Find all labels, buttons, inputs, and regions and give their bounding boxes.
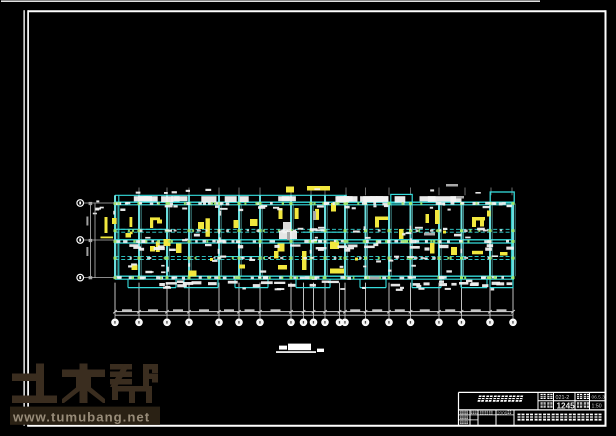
svg-text:www.tumubang.net: www.tumubang.net [12,410,150,425]
svg-text:1:50: 1:50 [592,404,602,410]
svg-text:1245: 1245 [557,401,576,410]
svg-text:2006: 2006 [497,411,508,416]
svg-text:021-2: 021-2 [556,395,570,401]
svg-text:06.5.3: 06.5.3 [592,395,606,401]
